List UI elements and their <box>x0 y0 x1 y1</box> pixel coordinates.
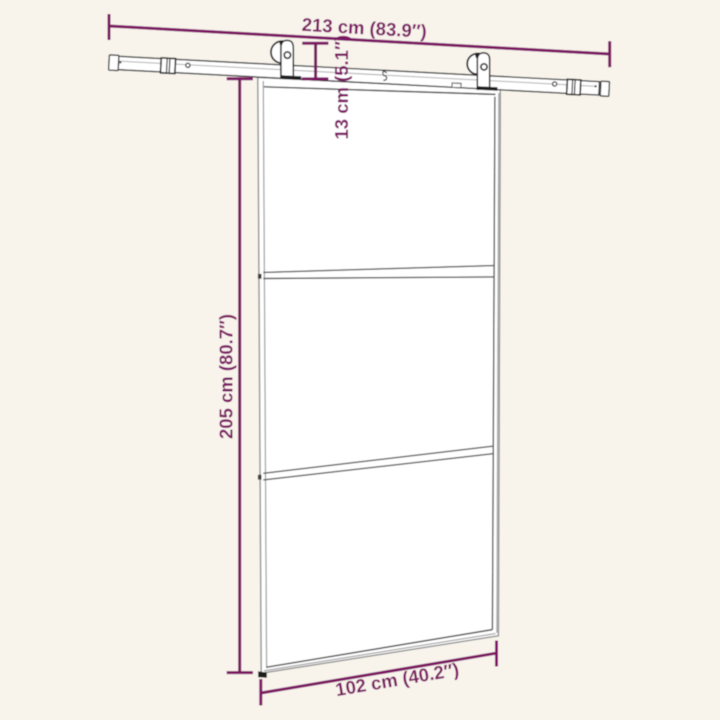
svg-text:13 cm (5.1″): 13 cm (5.1″) <box>331 35 352 140</box>
svg-text:205 cm (80.7″): 205 cm (80.7″) <box>216 314 237 439</box>
